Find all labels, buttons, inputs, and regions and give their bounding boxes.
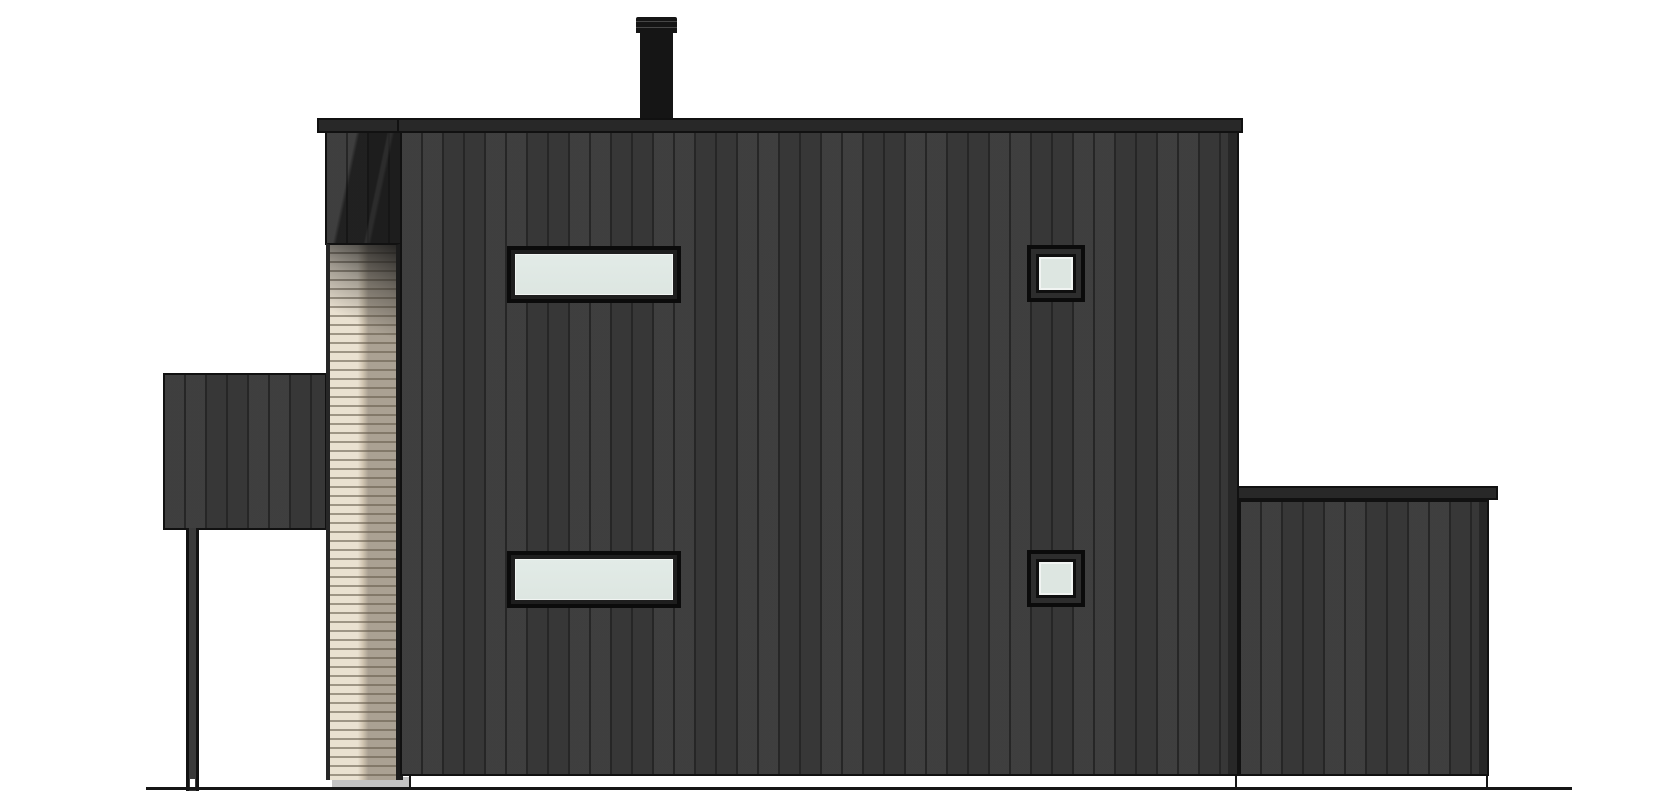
window-lower-right — [1027, 550, 1085, 607]
upper-left-wall-section — [325, 131, 402, 245]
window-glass — [515, 254, 673, 295]
annex-wall — [1239, 500, 1489, 776]
window-glass — [515, 559, 673, 600]
slat-entry-strip — [326, 243, 403, 780]
window-glass — [1036, 254, 1076, 293]
window-upper-right — [1027, 245, 1085, 302]
main-wall — [400, 131, 1239, 776]
roof-cap-seam — [397, 120, 399, 131]
ground-line — [146, 787, 1572, 790]
main-roof-cap — [317, 118, 1243, 133]
annex-roof-cap — [1237, 486, 1498, 500]
chimney — [640, 31, 673, 121]
window-upper-left — [507, 246, 681, 303]
elevation-drawing — [0, 0, 1670, 800]
carport-canopy — [163, 373, 327, 530]
window-lower-left — [507, 551, 681, 608]
window-glass — [1036, 559, 1076, 598]
carport-post — [186, 528, 199, 791]
